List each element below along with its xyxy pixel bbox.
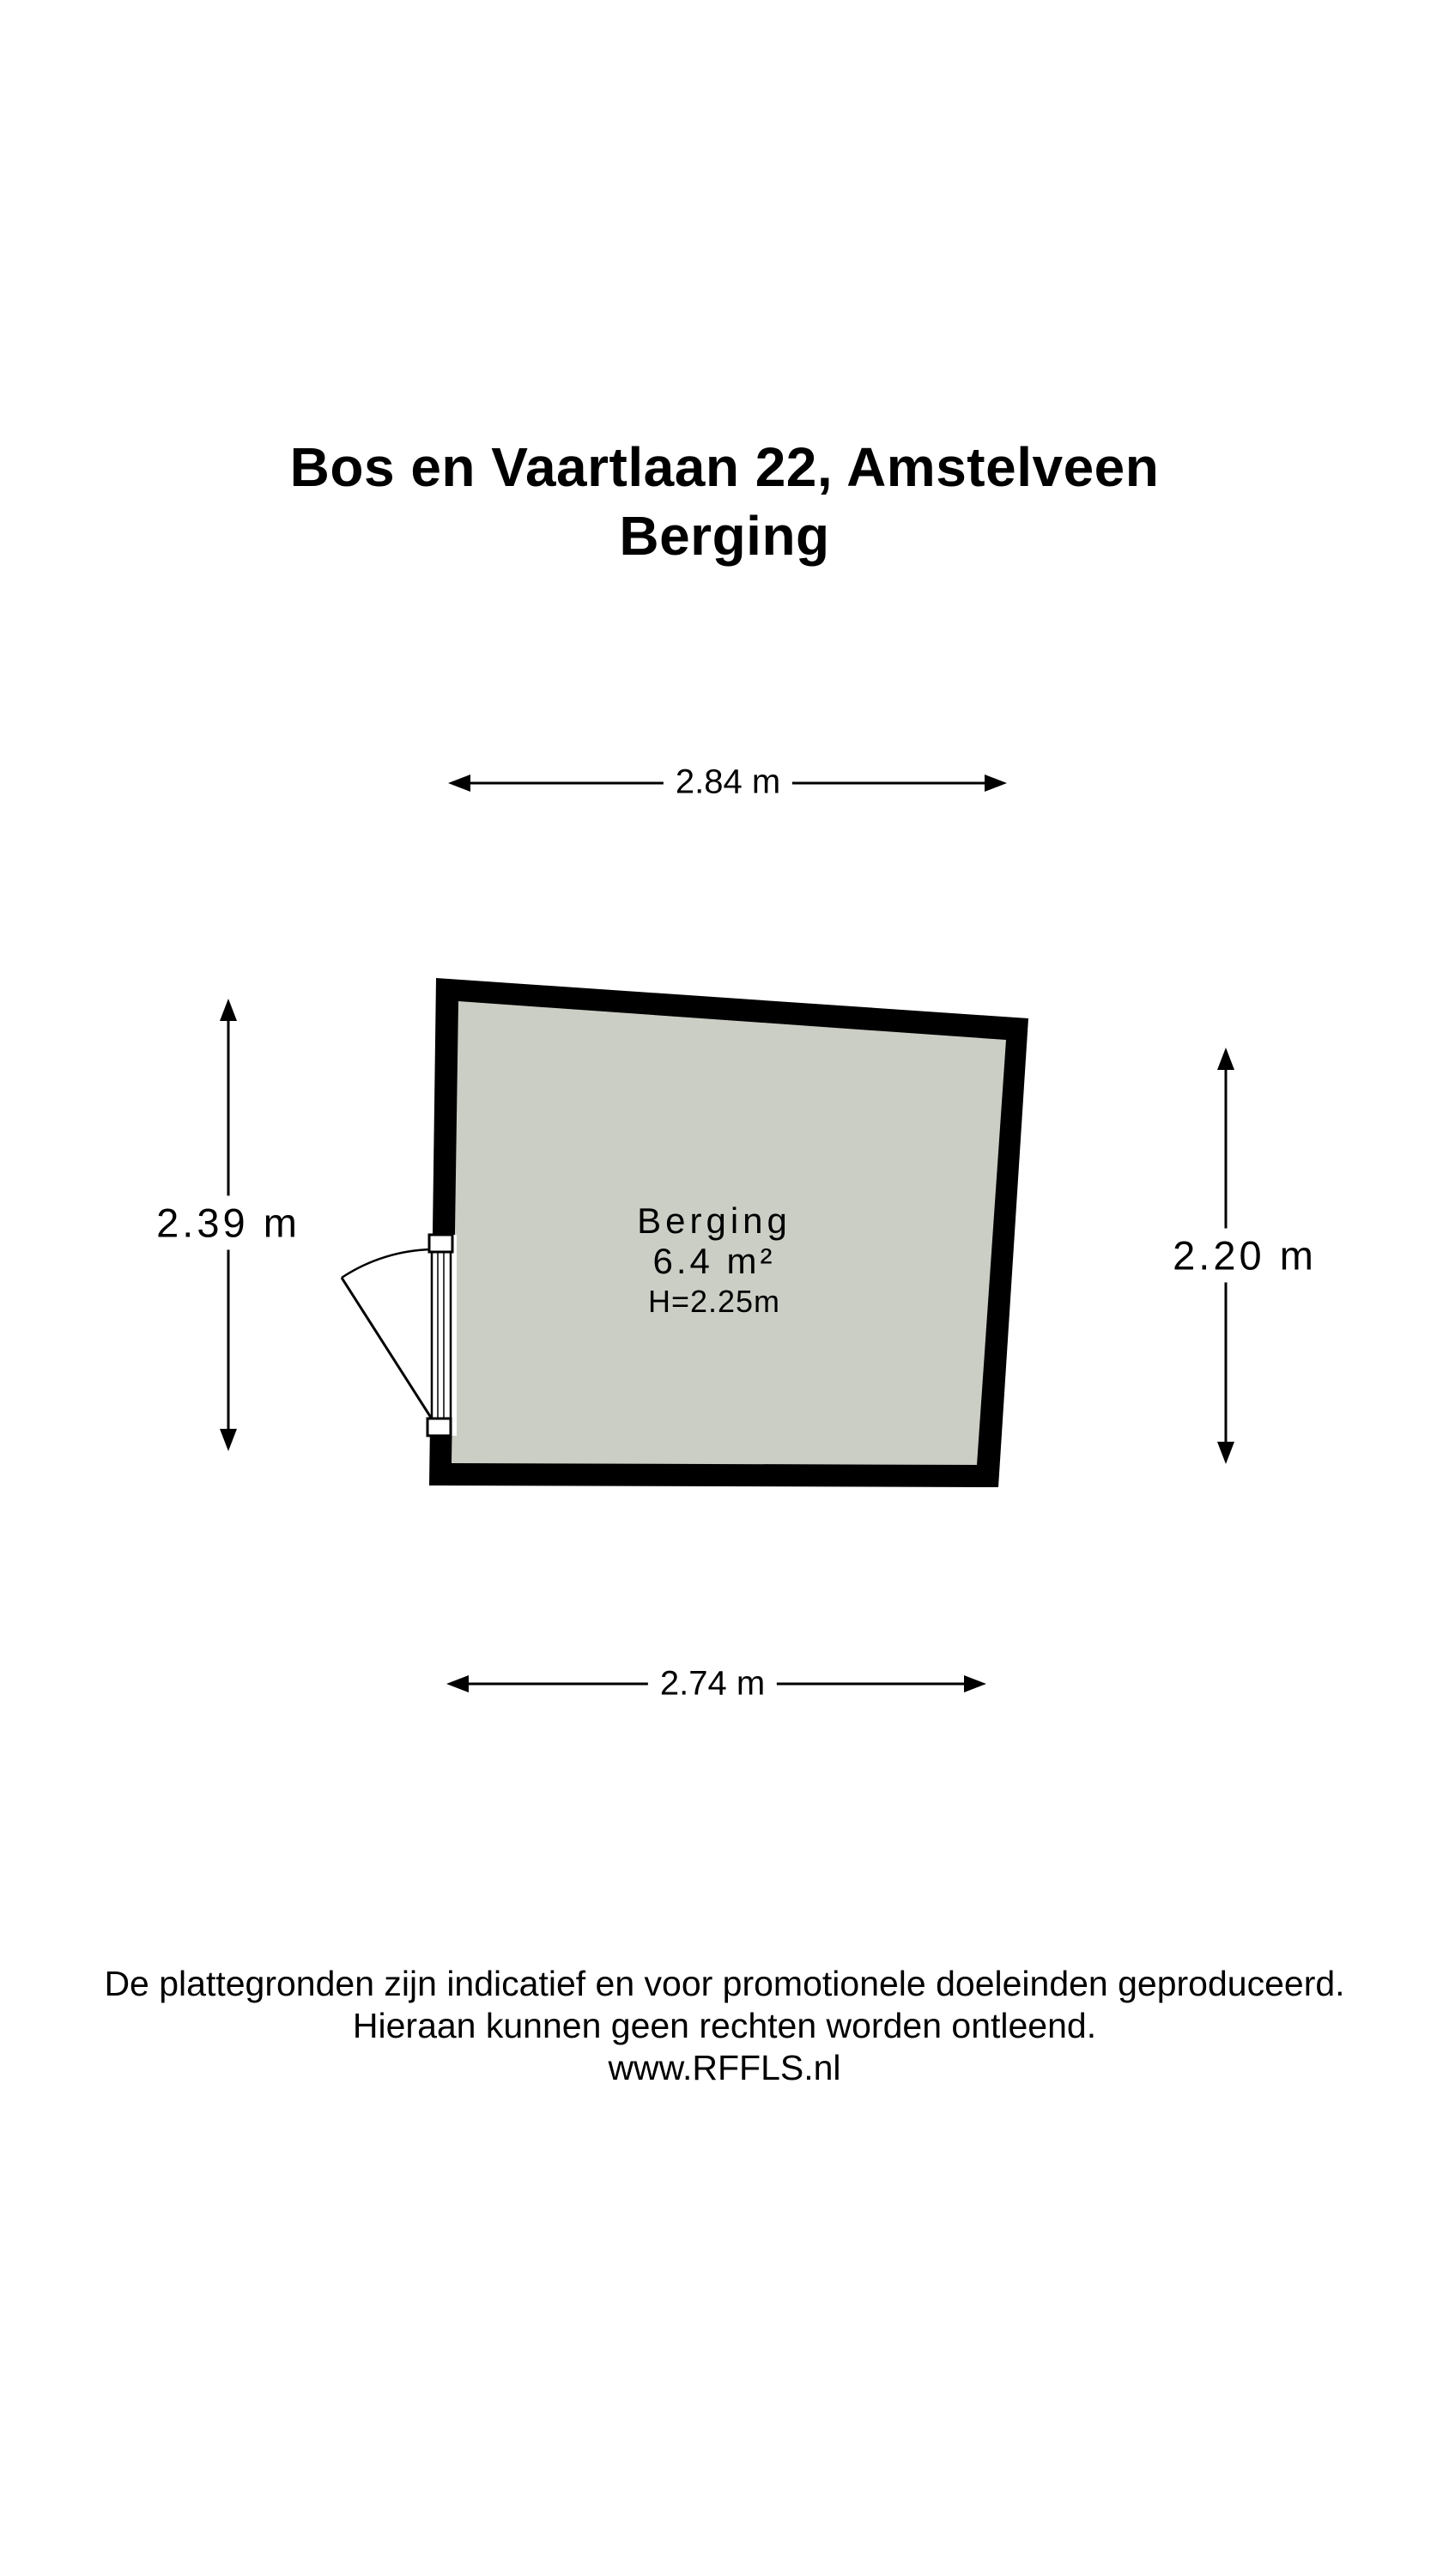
arrowhead-up-icon (1217, 1048, 1234, 1070)
room-ceiling-height: H=2.25m (637, 1281, 791, 1321)
disclaimer-line-2: Hieraan kunnen geen rechten worden ontle… (0, 2005, 1449, 2047)
door-post-bottom (427, 1419, 451, 1436)
arrowhead-up-icon (220, 999, 237, 1021)
page-title: Bos en Vaartlaan 22, Amstelveen Berging (0, 433, 1449, 570)
footer-website: www.RFFLS.nl (0, 2047, 1449, 2089)
room-name: Berging (637, 1200, 791, 1241)
arrowhead-down-icon (1217, 1442, 1234, 1464)
disclaimer-line-1: De plattegronden zijn indicatief en voor… (0, 1963, 1449, 2005)
arrowhead-right-icon (964, 1675, 986, 1692)
floorplan-page: Bos en Vaartlaan 22, Amstelveen Berging … (0, 0, 1449, 2576)
door-frame (432, 1250, 451, 1420)
title-room: Berging (0, 501, 1449, 570)
arrowhead-left-icon (448, 775, 470, 792)
dimension-label-bottom: 2.74 m (648, 1663, 777, 1705)
dimension-label-right: 2.20 m (1167, 1229, 1322, 1283)
room-label: Berging 6.4 m² H=2.25m (637, 1200, 791, 1321)
footer-disclaimer: De plattegronden zijn indicatief en voor… (0, 1963, 1449, 2089)
room-area: 6.4 m² (637, 1241, 791, 1281)
door-post-top (429, 1235, 452, 1252)
arrowhead-left-icon (446, 1675, 469, 1692)
arrowhead-down-icon (220, 1429, 237, 1451)
door-swing-arc (342, 1249, 433, 1278)
door-leaf (342, 1278, 433, 1420)
dimension-label-left: 2.39 m (151, 1196, 306, 1250)
arrowhead-right-icon (985, 775, 1007, 792)
dimension-label-top: 2.84 m (664, 762, 792, 804)
title-address: Bos en Vaartlaan 22, Amstelveen (0, 433, 1449, 501)
